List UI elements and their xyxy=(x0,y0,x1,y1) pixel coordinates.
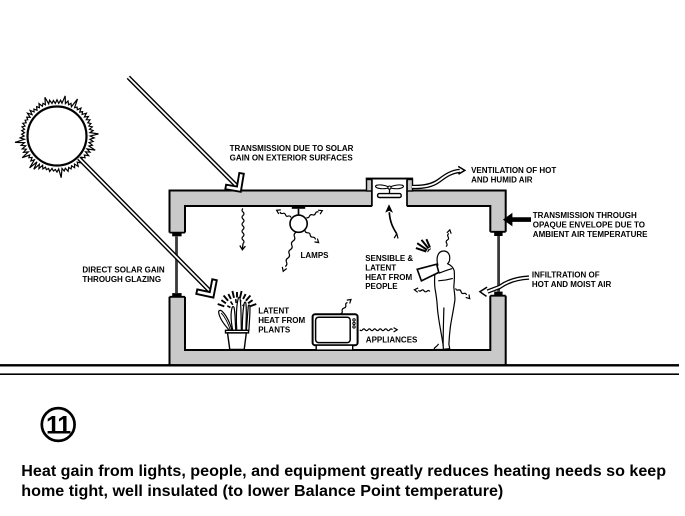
svg-text:APPLIANCES: APPLIANCES xyxy=(366,336,418,345)
svg-text:home tight, well insulated (to: home tight, well insulated (to lower Bal… xyxy=(21,482,503,500)
svg-text:VENTILATION OF HOT: VENTILATION OF HOT xyxy=(471,166,556,175)
svg-text:INFILTRATION OF: INFILTRATION OF xyxy=(532,271,600,280)
svg-text:AMBIENT AIR TEMPERATURE: AMBIENT AIR TEMPERATURE xyxy=(533,230,648,239)
svg-text:DIRECT SOLAR GAIN: DIRECT SOLAR GAIN xyxy=(82,265,164,274)
svg-text:TRANSMISSION THROUGH: TRANSMISSION THROUGH xyxy=(533,211,637,220)
svg-text:LAMPS: LAMPS xyxy=(301,251,330,260)
svg-text:HOT AND MOIST AIR: HOT AND MOIST AIR xyxy=(532,280,612,289)
svg-text:GAIN ON EXTERIOR SURFACES: GAIN ON EXTERIOR SURFACES xyxy=(230,153,354,162)
svg-text:AND HUMID AIR: AND HUMID AIR xyxy=(471,175,533,184)
svg-text:PEOPLE: PEOPLE xyxy=(365,282,398,291)
svg-text:TRANSMISSION DUE TO SOLAR: TRANSMISSION DUE TO SOLAR xyxy=(230,144,354,153)
svg-text:PLANTS: PLANTS xyxy=(258,326,291,335)
svg-text:THROUGH GLAZING: THROUGH GLAZING xyxy=(82,275,161,284)
svg-text:HEAT FROM: HEAT FROM xyxy=(258,316,305,325)
svg-text:SENSIBLE &: SENSIBLE & xyxy=(365,254,413,263)
svg-text:LATENT: LATENT xyxy=(365,264,396,273)
svg-text:Heat gain from lights, people,: Heat gain from lights, people, and equip… xyxy=(21,462,666,480)
svg-text:LATENT: LATENT xyxy=(258,306,289,315)
svg-text:OPAQUE ENVELOPE DUE TO: OPAQUE ENVELOPE DUE TO xyxy=(533,220,645,229)
svg-text:HEAT FROM: HEAT FROM xyxy=(365,273,412,282)
svg-text:11: 11 xyxy=(46,411,71,439)
